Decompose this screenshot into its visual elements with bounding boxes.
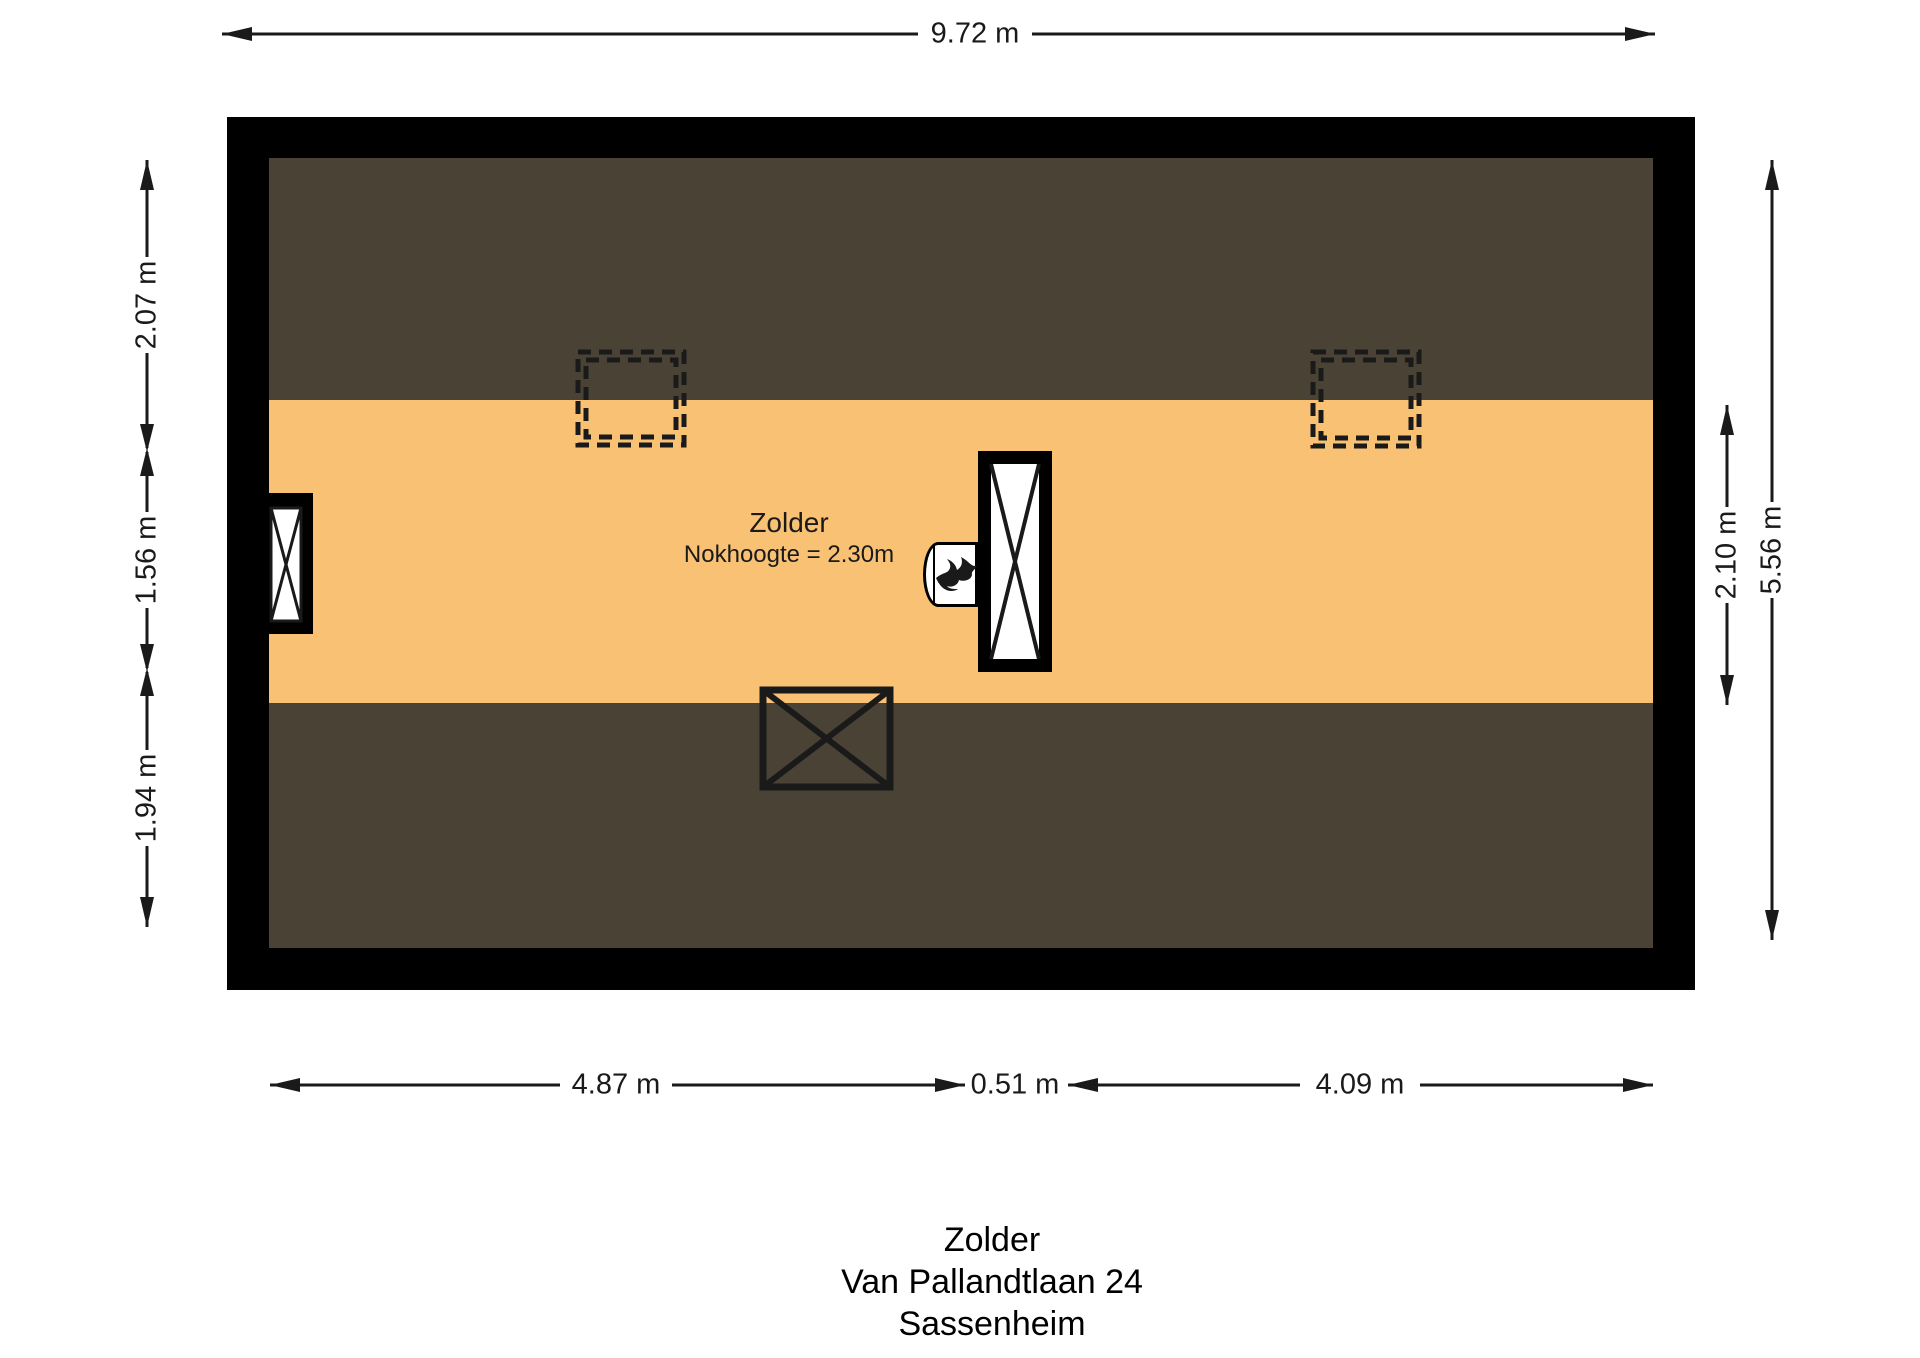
title-room: Zolder bbox=[692, 1219, 1292, 1261]
dim-label-bottom-2: 0.51 m bbox=[971, 1071, 1060, 1100]
dim-label-left-1: 2.07 m bbox=[133, 261, 162, 350]
title-address: Van Pallandtlaan 24 bbox=[692, 1261, 1292, 1303]
stair-opening bbox=[763, 690, 890, 787]
title-city: Sassenheim bbox=[692, 1303, 1292, 1345]
dim-label-bottom-1: 4.87 m bbox=[572, 1071, 661, 1100]
skylight-right bbox=[1313, 352, 1419, 446]
chimney-shaft bbox=[978, 451, 1052, 672]
dim-label-right-inner: 2.10 m bbox=[1713, 511, 1742, 600]
window bbox=[271, 508, 301, 621]
skylight-left bbox=[578, 352, 684, 445]
dim-label-left-3: 1.94 m bbox=[133, 754, 162, 843]
dim-label-right-outer: 5.56 m bbox=[1758, 506, 1787, 595]
room-name-label: Zolder bbox=[749, 507, 828, 539]
dim-label-left-2: 1.56 m bbox=[133, 516, 162, 605]
plan-linework bbox=[0, 0, 1920, 1358]
room-ridge-height-label: Nokhoogte = 2.30m bbox=[684, 541, 894, 569]
dim-label-top: 9.72 m bbox=[931, 20, 1020, 49]
dimension-bottom bbox=[270, 1078, 1653, 1092]
dim-label-bottom-3: 4.09 m bbox=[1316, 1071, 1405, 1100]
flame-icon bbox=[936, 557, 977, 591]
title-block: Zolder Van Pallandtlaan 24 Sassenheim bbox=[692, 1219, 1292, 1345]
floorplan-page: 9.72 m 2.07 m 1.56 m 1.94 m 2.10 m 5.56 … bbox=[0, 0, 1920, 1358]
